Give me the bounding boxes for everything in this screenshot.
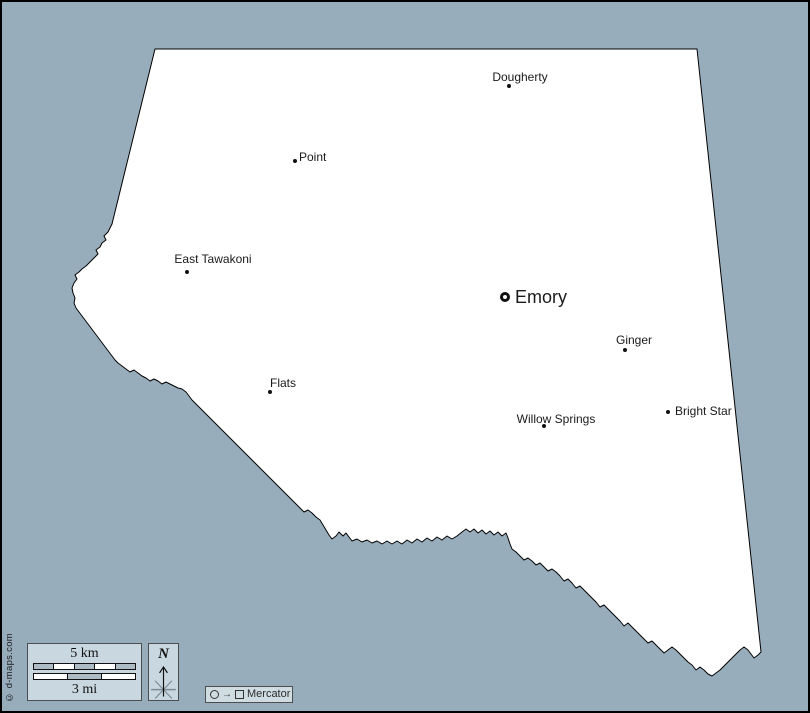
scale-bar-mi xyxy=(33,673,136,680)
projection-name: Mercator xyxy=(247,689,290,700)
copyright-credit: © d-maps.com xyxy=(4,633,15,703)
compass-panel: N xyxy=(148,643,179,701)
km-segment-2 xyxy=(54,664,74,669)
square-symbol-icon xyxy=(235,690,244,699)
mi-segment-3 xyxy=(102,674,135,679)
mi-segment-1 xyxy=(34,674,68,679)
km-segment-4 xyxy=(95,664,115,669)
place-label-east-tawakoni: East Tawakoni xyxy=(174,253,251,265)
mi-segment-2 xyxy=(68,674,102,679)
county-shape xyxy=(72,49,761,676)
projection-legend: → Mercator xyxy=(205,686,293,703)
place-marker-bright-star xyxy=(666,410,670,414)
place-marker-east-tawakoni xyxy=(185,270,189,274)
scale-bar-km xyxy=(33,663,136,670)
place-marker-ginger xyxy=(623,348,627,352)
arrow-right-icon: → xyxy=(222,690,232,700)
compass-north-label: N xyxy=(158,646,169,663)
place-marker-flats xyxy=(268,390,272,394)
place-label-flats: Flats xyxy=(270,377,296,389)
scale-bar-panel: 5 km 3 mi xyxy=(27,643,142,701)
scale-mi-label: 3 mi xyxy=(72,682,97,697)
place-label-willow-springs: Willow Springs xyxy=(517,413,596,425)
place-label-dougherty: Dougherty xyxy=(492,71,547,83)
place-label-emory: Emory xyxy=(515,288,567,306)
place-marker-dougherty xyxy=(507,84,511,88)
km-segment-1 xyxy=(34,664,54,669)
km-segment-5 xyxy=(116,664,135,669)
circle-symbol-icon xyxy=(210,690,219,699)
compass-star-icon xyxy=(149,663,178,701)
place-marker-point xyxy=(293,159,297,163)
place-label-point: Point xyxy=(299,151,326,163)
km-segment-3 xyxy=(75,664,95,669)
place-marker-emory xyxy=(500,292,510,302)
map-canvas: DoughertyPointEast TawakoniEmoryGingerFl… xyxy=(0,0,810,713)
place-label-ginger: Ginger xyxy=(616,334,652,346)
scale-km-label: 5 km xyxy=(70,646,98,661)
place-label-bright-star: Bright Star xyxy=(675,405,732,417)
county-outline-map xyxy=(2,2,808,711)
